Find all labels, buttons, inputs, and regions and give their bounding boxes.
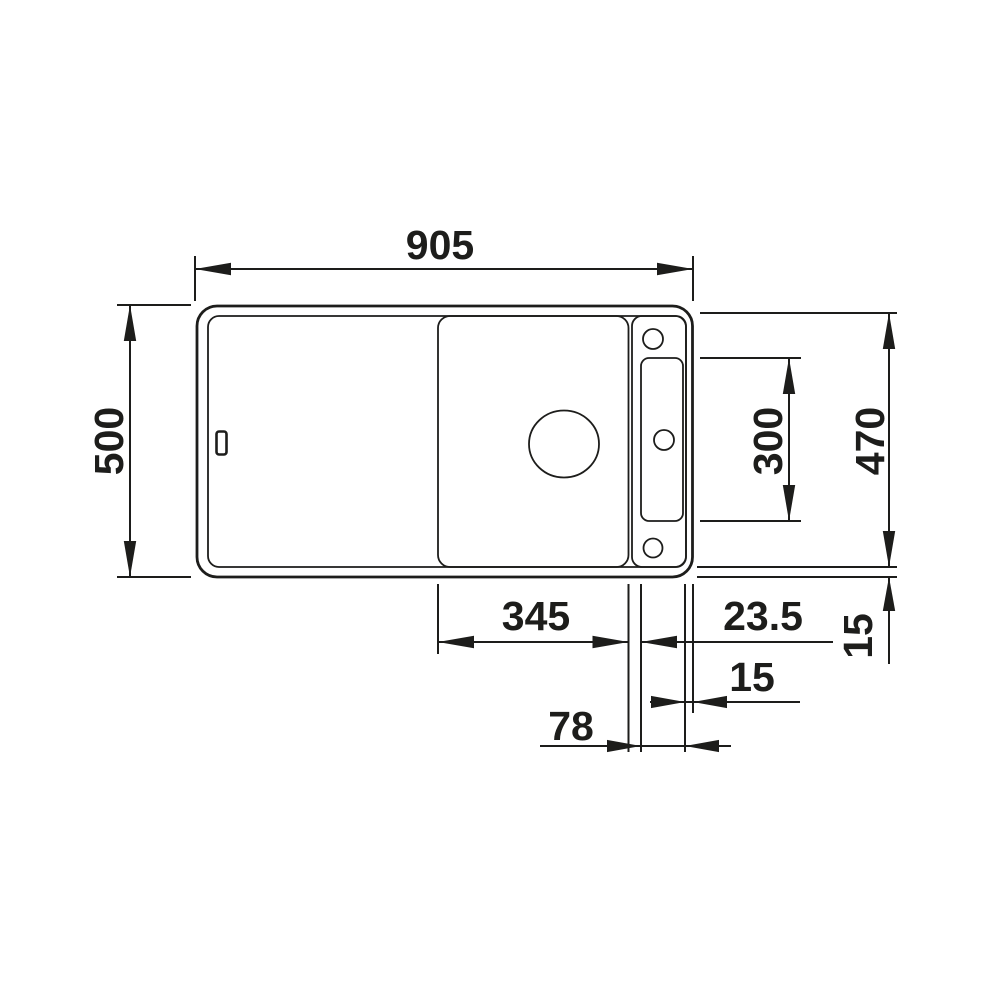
sink-outline xyxy=(197,306,693,577)
arrowhead-left-pointing xyxy=(685,740,719,752)
dimension-tap-panel-width: 78 xyxy=(540,703,731,752)
drain-hole xyxy=(529,411,599,478)
arrowhead-left-pointing xyxy=(693,696,727,708)
technical-drawing-canvas: 905 500 470 300 15 xyxy=(0,0,992,992)
dimension-label-905: 905 xyxy=(406,222,474,268)
dimension-panel-to-edge: 15 xyxy=(650,654,800,708)
dimension-overall-width: 905 xyxy=(195,222,693,301)
arrowhead-bottom xyxy=(124,541,136,577)
arrowhead-up xyxy=(883,577,895,611)
arrowhead-left xyxy=(641,636,677,648)
arrowhead-right xyxy=(593,636,629,648)
dimension-label-15-vertical: 15 xyxy=(835,613,881,659)
tap-hole-bottom xyxy=(644,539,663,558)
arrowhead-bottom xyxy=(883,531,895,567)
arrowhead-top xyxy=(124,305,136,341)
sink-outer-edge xyxy=(197,306,693,577)
sink-dimension-drawing: 905 500 470 300 15 xyxy=(0,0,992,992)
arrowhead-top xyxy=(783,358,795,394)
dimension-label-470: 470 xyxy=(847,407,893,475)
dimension-label-23-5: 23.5 xyxy=(723,593,803,639)
sink-rim-inner-edge xyxy=(208,316,686,567)
overflow-slot xyxy=(217,432,227,455)
dimension-label-345: 345 xyxy=(502,593,570,639)
sink-bowl xyxy=(438,316,629,567)
arrowhead-left xyxy=(438,636,474,648)
dimension-label-500: 500 xyxy=(86,407,132,475)
arrowhead-left xyxy=(195,263,231,275)
dimension-label-78: 78 xyxy=(548,703,594,749)
dimension-label-300: 300 xyxy=(745,407,791,475)
arrowhead-top xyxy=(883,313,895,349)
dimension-bowl-width: 345 xyxy=(438,593,629,648)
arrowhead-right-pointing xyxy=(651,696,685,708)
dimension-overall-depth: 500 xyxy=(86,305,191,577)
dimension-label-15-horizontal: 15 xyxy=(729,654,775,700)
dimension-bowl-to-panel-gap: 23.5 xyxy=(641,593,833,648)
dimension-tap-panel-height: 300 xyxy=(700,358,801,521)
arrowhead-right-pointing xyxy=(607,740,641,752)
arrowhead-right xyxy=(657,263,693,275)
tap-hole-panel xyxy=(641,358,683,521)
dimension-rim-offset: 15 xyxy=(835,577,895,664)
dimension-right-depth: 470 xyxy=(697,313,897,577)
tap-hole-middle xyxy=(654,430,674,450)
arrowhead-bottom xyxy=(783,485,795,521)
tap-hole-top xyxy=(643,329,663,349)
